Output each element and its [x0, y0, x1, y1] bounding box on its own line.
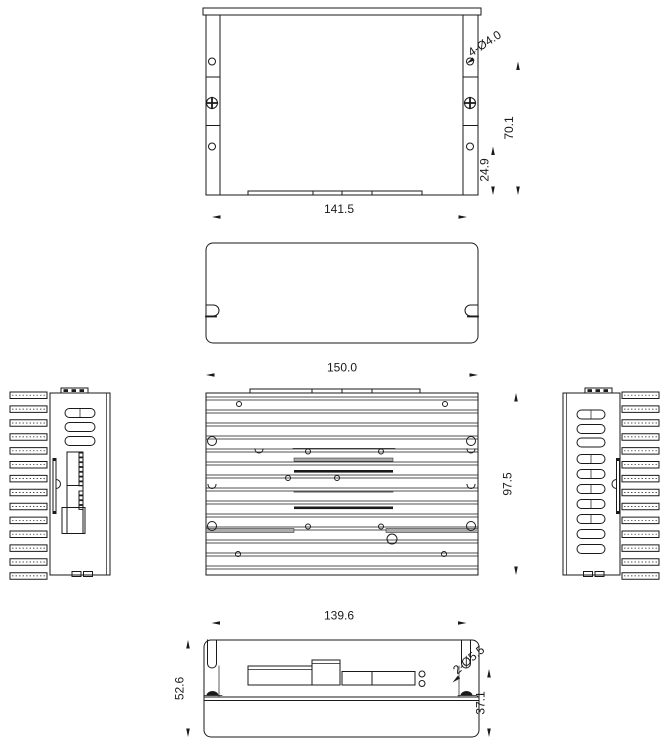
heatsink-fins [10, 392, 47, 579]
hole [306, 449, 311, 454]
dim-bottom-height-label: 52.6 [173, 676, 187, 700]
tab-mark [596, 389, 601, 392]
pin [79, 463, 83, 467]
tab-mark [588, 389, 593, 392]
heatsink-fin-lines [206, 397, 478, 569]
fin-strip [386, 529, 478, 533]
foot-dome [461, 691, 473, 696]
vent-slot [65, 423, 95, 432]
pin [79, 496, 83, 500]
cover-view [206, 243, 478, 343]
bottom-tab [595, 572, 604, 577]
connector [372, 672, 415, 686]
dim-arrows [514, 393, 518, 575]
bottom-tab [84, 572, 93, 577]
led-hole [419, 671, 425, 677]
cover-notch-right [465, 305, 478, 316]
dim-arrows [487, 669, 491, 737]
dim-front-height-label: 97.5 [501, 472, 515, 496]
right-side-view [563, 388, 659, 579]
bar-nub [53, 511, 57, 514]
pin [79, 467, 83, 471]
hole-callout: 4-Ø4.0 [459, 27, 506, 65]
cover-notch-left [206, 305, 219, 316]
edge-bar [617, 460, 620, 513]
drawing-sheet: 141.5 70.1 24.9 4-Ø4.0 [0, 0, 672, 753]
body-outline [50, 393, 110, 575]
dim-top-width-label: 141.5 [324, 202, 354, 216]
pin [79, 477, 83, 481]
hole [209, 143, 216, 150]
hole [467, 143, 474, 150]
dim-line [184, 640, 204, 737]
mounting-rail-lines [220, 15, 463, 195]
vent-slot [577, 545, 605, 554]
fin-bar [294, 470, 393, 473]
pin [79, 472, 83, 476]
dim-bottom-inner-height-label: 37.1 [474, 691, 488, 715]
hole [379, 449, 384, 454]
hole [443, 402, 448, 407]
vent-slot [577, 425, 605, 434]
vent-slot [577, 438, 605, 447]
cover-outline [206, 243, 478, 343]
connector-strip [248, 191, 422, 195]
dim-arrows [491, 147, 495, 196]
hole [208, 437, 217, 446]
mounting-slot-left [208, 640, 217, 668]
connector [342, 672, 372, 686]
tab-mark [64, 389, 69, 392]
fin-strip [206, 529, 294, 533]
edge-bar [53, 460, 56, 513]
heatsink-outline [206, 393, 478, 575]
fin-strip [294, 458, 393, 461]
connector-strip-ticks [313, 191, 372, 195]
dim-bottom-width-label: 139.6 [324, 609, 354, 623]
pin [79, 501, 83, 505]
dim-arrows [516, 62, 520, 196]
terminal-connector [67, 452, 83, 534]
terminal-block [248, 666, 312, 685]
bar-nub [616, 458, 620, 461]
top-edge-tab [250, 389, 420, 393]
hole-callout: 2-Ø5.5 [444, 642, 489, 683]
base-lines [204, 697, 479, 701]
edge-notches [208, 449, 475, 489]
edge-bump [56, 480, 61, 489]
led-hole [419, 681, 425, 687]
fin-texture [12, 395, 45, 576]
pin [79, 491, 83, 495]
pin [79, 458, 83, 462]
tab-mark [604, 389, 609, 392]
hole [467, 437, 476, 446]
hole-callout-label: 4-Ø4.0 [465, 27, 504, 59]
connector-block [62, 508, 85, 534]
hole [209, 58, 216, 65]
top-body-outline [206, 15, 478, 195]
hole [387, 534, 397, 544]
edge-bump [612, 480, 617, 489]
vent-slot [577, 530, 605, 539]
bottom-tab [584, 572, 593, 577]
bottom-tab [72, 572, 81, 577]
hole [306, 524, 311, 529]
fin-texture [624, 395, 657, 576]
front-view: 150.0 97.5 [206, 361, 520, 576]
dim-hole-span-label: 70.1 [502, 116, 516, 140]
engineering-drawing: 141.5 70.1 24.9 4-Ø4.0 [0, 0, 672, 753]
bar-nub [53, 458, 57, 461]
bar-nub [616, 511, 620, 514]
dim-hole-offset-label: 24.9 [478, 158, 492, 182]
vent-slot [65, 437, 95, 446]
foot-dome [207, 691, 219, 696]
fin-bar [294, 507, 393, 510]
hole-callout-label: 2-Ø5.5 [450, 642, 487, 677]
bottom-outline [204, 640, 479, 737]
hole [237, 402, 242, 407]
hole [379, 524, 384, 529]
dim-arrows [186, 640, 190, 737]
tab-mark [80, 389, 85, 392]
tab-mark [72, 389, 77, 392]
dim-front-width-label: 150.0 [327, 361, 357, 375]
bottom-view: 139.6 52.6 37.1 2-Ø5.5 [173, 609, 494, 738]
pin [79, 453, 83, 457]
left-side-view [10, 388, 110, 579]
top-flange [203, 8, 481, 15]
top-view: 141.5 70.1 24.9 4-Ø4.0 [203, 8, 522, 221]
rail-divider-lines [206, 77, 478, 126]
heatsink-fins [622, 392, 659, 579]
